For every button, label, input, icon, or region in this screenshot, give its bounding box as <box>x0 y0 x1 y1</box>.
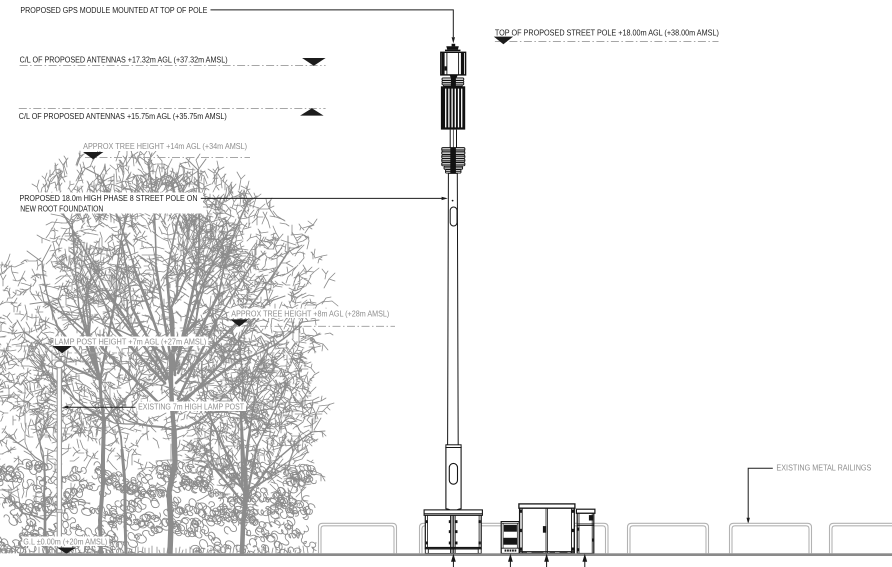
svg-text:EXISTING METAL RAILINGS: EXISTING METAL RAILINGS <box>776 463 871 473</box>
svg-text:C/L OF PROPOSED ANTENNAS +17.3: C/L OF PROPOSED ANTENNAS +17.32m AGL (+3… <box>20 54 228 64</box>
svg-text:PROPOSED GPS MODULE MOUNTED AT: PROPOSED GPS MODULE MOUNTED AT TOP OF PO… <box>20 5 207 15</box>
svg-text:G.L ±0.00m (+20m AMSL): G.L ±0.00m (+20m AMSL) <box>23 537 107 547</box>
svg-text:APPROX TREE HEIGHT +14m AGL (: APPROX TREE HEIGHT +14m AGL (+34m AMSL) <box>83 141 247 151</box>
svg-text:TOP OF PROPOSED STREET POLE +1: TOP OF PROPOSED STREET POLE +18.00m AGL … <box>495 27 719 37</box>
svg-text:PROPOSED 18.0m HIGH PHASE 8 ST: PROPOSED 18.0m HIGH PHASE 8 STREET POLE … <box>20 193 198 203</box>
svg-text:APPROX TREE HEIGHT +8m AGL (+: APPROX TREE HEIGHT +8m AGL (+28m AMSL) <box>231 309 389 319</box>
svg-text:C/L OF PROPOSED ANTENNAS +15.7: C/L OF PROPOSED ANTENNAS +15.75m AGL (+3… <box>19 111 227 121</box>
svg-text:EXISTING 7m HIGH LAMP POST: EXISTING 7m HIGH LAMP POST <box>138 402 245 412</box>
svg-text:LAMP POST HEIGHT +7m AGL (+27m: LAMP POST HEIGHT +7m AGL (+27m AMSL) <box>54 337 206 347</box>
svg-text:NEW ROOT FOUNDATION: NEW ROOT FOUNDATION <box>20 203 103 213</box>
